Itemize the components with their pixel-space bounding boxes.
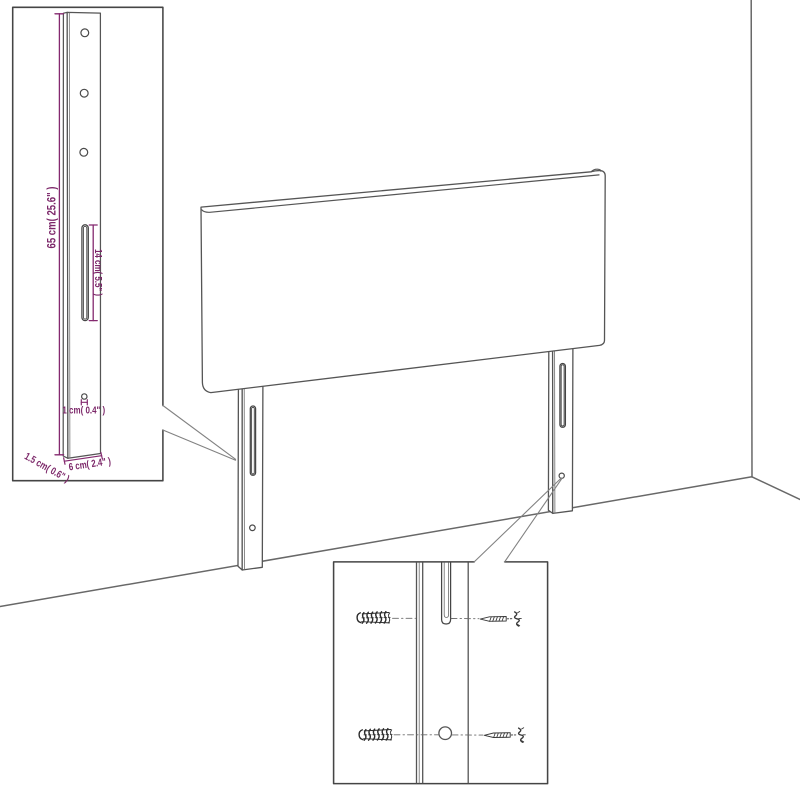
svg-text:65 cm( 25.6" ): 65 cm( 25.6" ) — [46, 186, 58, 248]
svg-text:6 cm( 2.4" ): 6 cm( 2.4" ) — [68, 456, 112, 473]
svg-text:1 cm( 0.4" ): 1 cm( 0.4" ) — [62, 406, 105, 417]
svg-text:14 cm( 5.5" ): 14 cm( 5.5" ) — [92, 249, 103, 296]
